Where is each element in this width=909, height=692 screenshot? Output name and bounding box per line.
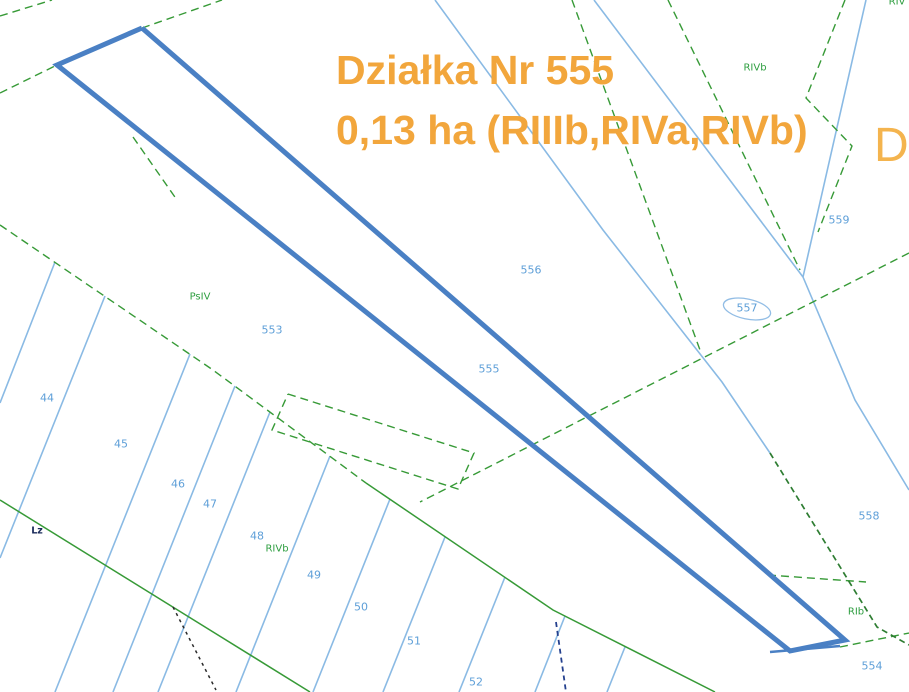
boundary-line-blue (55, 354, 190, 692)
boundary-line-blue (0, 262, 55, 403)
cadastral-map-page: { "title": { "line1": "Działka Nr 555", … (0, 0, 909, 692)
map-canvas: 444546474849505152553555556557558559554R… (0, 0, 909, 692)
plot-title-line2: 0,13 ha (RIIIb,RIVa,RIVb) (336, 100, 808, 160)
boundary-line-green-dashed (420, 253, 909, 502)
boundary-line-green-dashed (806, 0, 852, 232)
boundary-line-green (366, 483, 715, 692)
boundary-line-blue (383, 537, 445, 692)
plot-title-line1: Działka Nr 555 (336, 40, 808, 100)
boundary-line-green-dashed (840, 633, 909, 647)
boundary-line-blue (607, 647, 625, 692)
boundary-line-blue (535, 616, 565, 692)
boundary-line-black-dotted (173, 607, 216, 690)
label-circle-557 (721, 294, 772, 324)
boundary-line-navy-dashed (556, 622, 566, 692)
boundary-line-blue (0, 296, 105, 558)
boundary-line-green-dashed (272, 394, 474, 489)
boundary-line-green (0, 500, 310, 692)
boundary-line-green-dark (770, 453, 909, 645)
boundary-line-blue (459, 577, 505, 692)
boundary-line-blue (236, 456, 330, 692)
boundary-line-blue (313, 499, 390, 692)
plot-annotation: Działka Nr 555 0,13 ha (RIIIb,RIVa,RIVb) (336, 40, 808, 160)
watermark-letter: D (874, 118, 909, 173)
boundary-line-blue (803, 0, 866, 277)
boundary-line-green-dashed (0, 0, 52, 16)
boundary-line-blue (113, 386, 235, 692)
boundary-line-blue (803, 277, 909, 490)
boundary-line-green-dashed (768, 575, 866, 582)
boundary-line-green-dashed (0, 65, 57, 93)
boundary-line-green-dashed (142, 0, 222, 28)
